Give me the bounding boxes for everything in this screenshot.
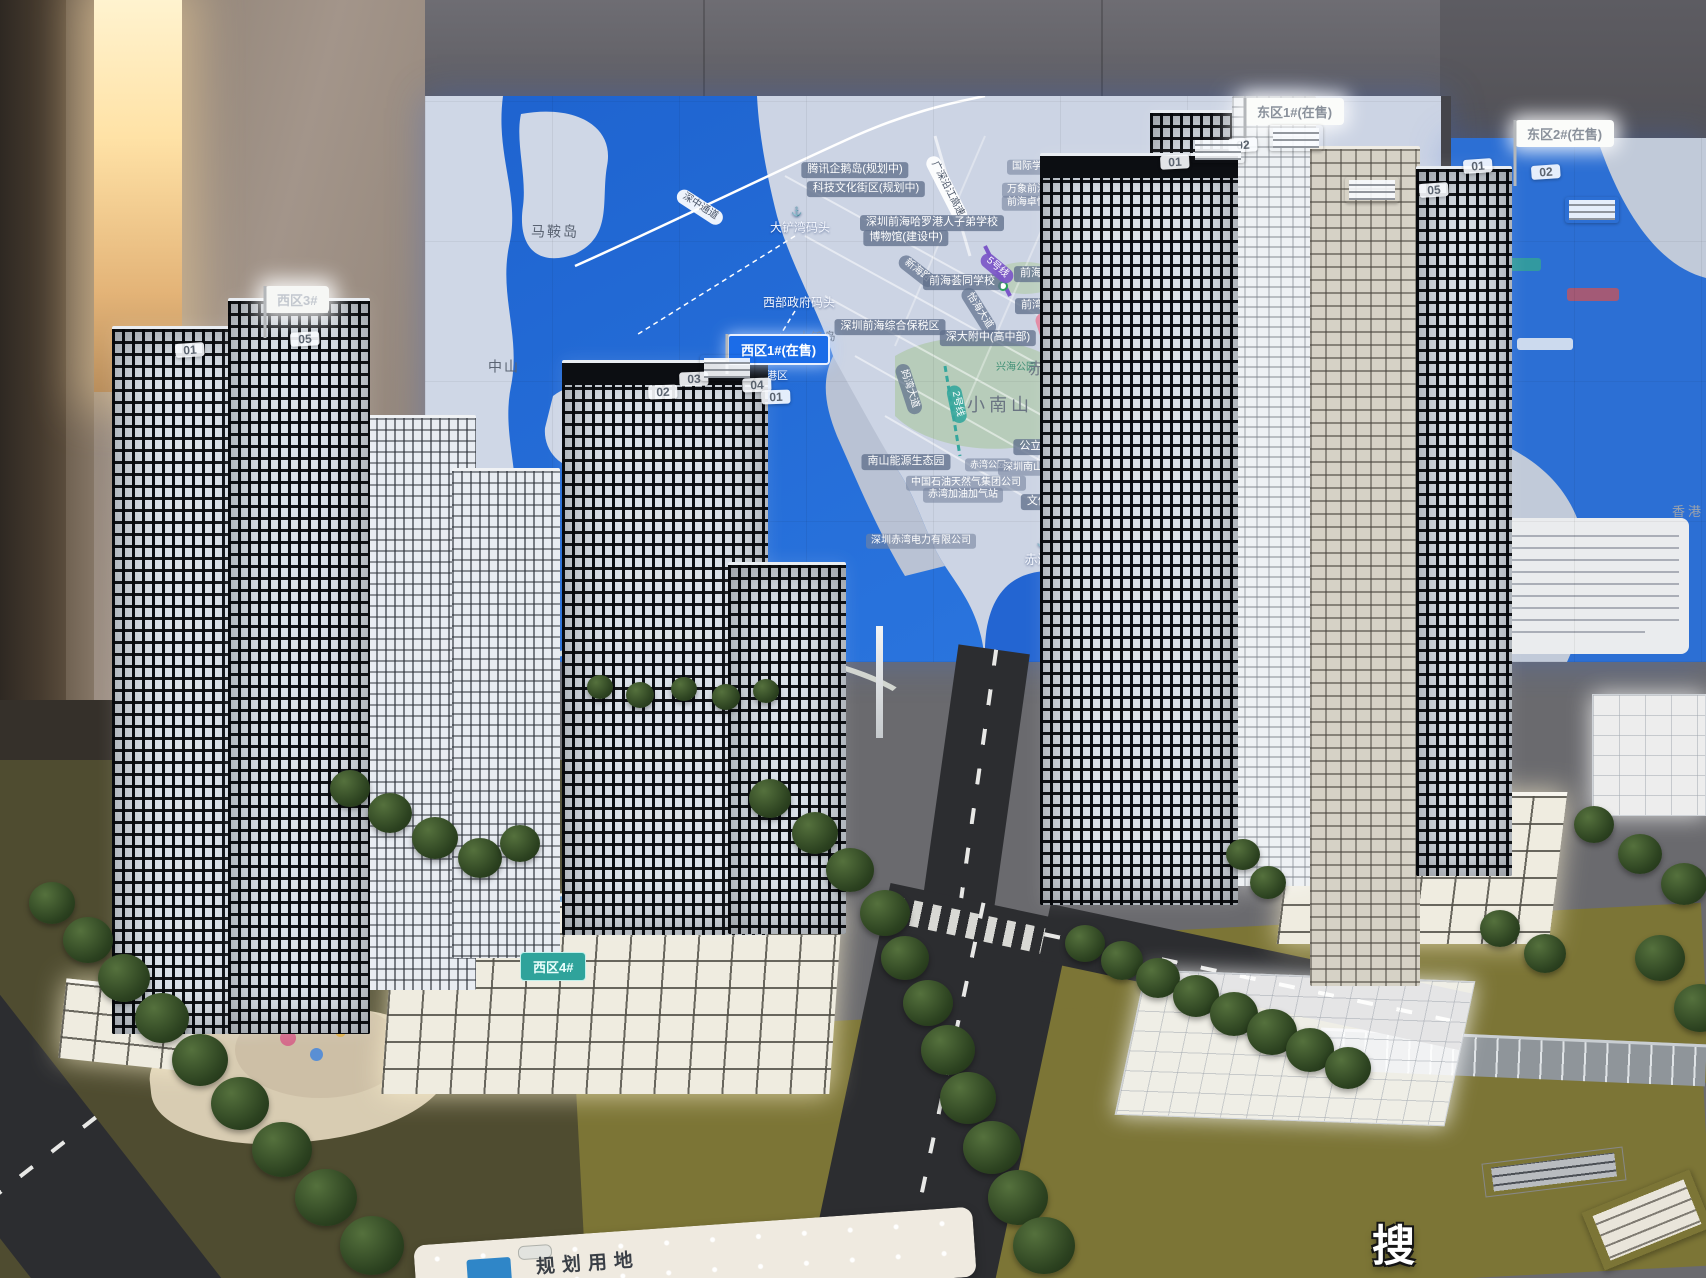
- tower-number-tag: 01: [1463, 158, 1493, 174]
- showroom-photo: 马鞍岛中山淇澳岛大铲岛深中通道广深沿江高速⚓大铲湾码头腾讯企鹅岛(规划中)科技文…: [0, 0, 1706, 1278]
- tower-info-tab: [1191, 137, 1245, 163]
- tower-number-tag: 02: [1531, 164, 1561, 180]
- tower-tags-layer: 0105020304010102050102: [0, 0, 1706, 1278]
- tower-number-tag: 05: [290, 331, 320, 347]
- watermark-text: 搜狐号@深圳特区报: [1372, 1212, 1416, 1278]
- tower-number-tag: 01: [1160, 154, 1190, 170]
- tower-number-tag: 02: [648, 384, 678, 399]
- tower-info-tab: [700, 355, 754, 381]
- plot-blue-tag: [466, 1257, 512, 1278]
- tower-info-tab: [1565, 197, 1619, 223]
- tower-number-tag: 01: [175, 342, 205, 358]
- tower-info-tab: [1269, 125, 1323, 151]
- tower-number-tag: 01: [761, 389, 791, 404]
- tower-number-tag: 05: [1419, 182, 1449, 198]
- planning-plot-label: 规划用地: [535, 1245, 641, 1278]
- planning-plot-sign: 规划用地: [518, 1244, 553, 1260]
- tower-info-tab: [1345, 177, 1399, 203]
